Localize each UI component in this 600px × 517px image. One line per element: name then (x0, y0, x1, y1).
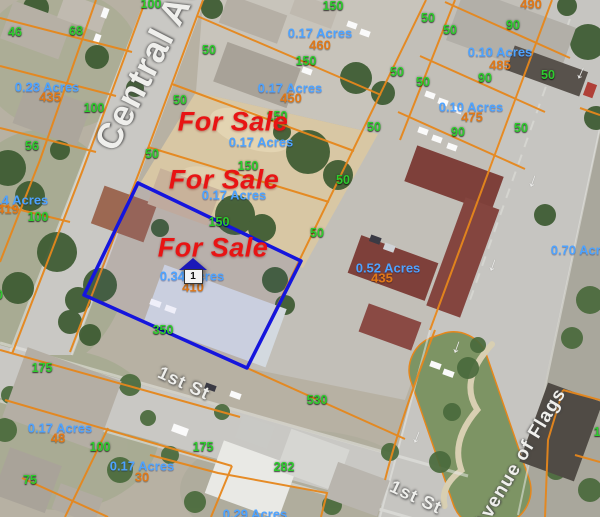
dimension-label: 75 (23, 474, 37, 487)
dimension-label: 100 (594, 426, 600, 439)
address-label: 419 (0, 203, 19, 216)
lane-arrow-icon: ↓ (408, 424, 426, 449)
dimension-label: 150 (209, 216, 230, 229)
acreage-label: 0.17 Acres (229, 136, 294, 149)
dimension-label: 100 (28, 211, 49, 224)
dimension-label: 56 (25, 140, 39, 153)
dimension-label: 50 (0, 289, 3, 302)
dimension-label: 150 (323, 0, 344, 12)
dimension-label: 68 (69, 25, 83, 38)
address-label: 48 (51, 432, 65, 445)
lane-arrow-icon: ↓ (484, 252, 501, 277)
dimension-label: 50 (367, 121, 381, 134)
dimension-label: 50 (390, 66, 404, 79)
map-canvas: 1001504668509050501505050905050100150505… (0, 0, 600, 517)
dimension-label: 50 (145, 148, 159, 161)
dimension-label: 90 (451, 126, 465, 139)
address-label: 435 (371, 272, 393, 285)
address-label: 490 (520, 0, 542, 11)
dimension-label: 50 (514, 122, 528, 135)
address-label: 30 (135, 471, 149, 484)
street-name-label: 1st St (155, 363, 212, 403)
address-label: 435 (39, 91, 61, 104)
lane-arrow-icon: ↓ (524, 168, 541, 193)
dimension-label: 50 (421, 12, 435, 25)
dimension-label: 50 (202, 44, 216, 57)
dimension-label: 50 (310, 227, 324, 240)
address-label: 485 (489, 59, 511, 72)
dimension-label: 100 (90, 441, 111, 454)
address-label: 460 (309, 39, 331, 52)
dimension-label: 175 (193, 441, 214, 454)
street-name-label: Avenue of Flags (470, 385, 569, 517)
dimension-label: 175 (32, 362, 53, 375)
dimension-label: 90 (506, 19, 520, 32)
dimension-label: 50 (541, 69, 555, 82)
address-label: 475 (461, 111, 483, 124)
acreage-label: 0.70 Acres (551, 244, 600, 257)
dimension-label: 50 (416, 76, 430, 89)
dimension-label: 46 (8, 26, 22, 39)
dimension-label: 50 (443, 24, 457, 37)
dimension-label: 90 (478, 72, 492, 85)
lane-arrow-icon: ↓ (448, 334, 465, 359)
label-layer: 1001504668509050501505050905050100150505… (0, 0, 600, 517)
lane-arrow-icon: ↓ (572, 60, 590, 85)
acreage-label: 0.29 Acres (223, 508, 288, 517)
dimension-label: 150 (296, 55, 317, 68)
address-label: 450 (280, 92, 302, 105)
dimension-label: 530 (307, 394, 328, 407)
marker-count: 1 (190, 271, 196, 282)
for-sale-label[interactable]: For Sale (169, 167, 280, 194)
dimension-label: 350 (153, 324, 174, 337)
dimension-label: 50 (173, 94, 187, 107)
for-sale-label[interactable]: For Sale (158, 235, 269, 262)
for-sale-label[interactable]: For Sale (178, 109, 289, 136)
marker-body: 1 (184, 269, 203, 284)
house-marker-icon[interactable]: 1 (179, 258, 207, 284)
street-name-label: 1st St (387, 477, 444, 517)
dimension-label: 282 (274, 461, 295, 474)
dimension-label: 50 (336, 174, 350, 187)
